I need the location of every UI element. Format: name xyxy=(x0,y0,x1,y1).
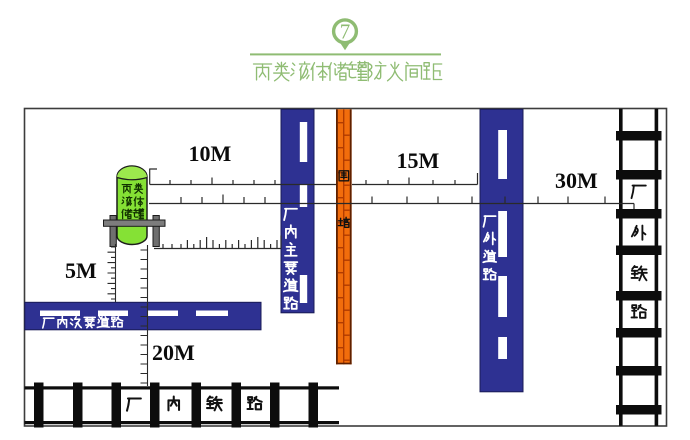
svg-text:20M: 20M xyxy=(152,340,195,365)
svg-text:7: 7 xyxy=(340,20,351,44)
svg-text:5M: 5M xyxy=(65,258,97,283)
svg-text:30M: 30M xyxy=(555,168,598,193)
svg-text:15M: 15M xyxy=(397,148,440,173)
svg-text:10M: 10M xyxy=(189,141,232,166)
